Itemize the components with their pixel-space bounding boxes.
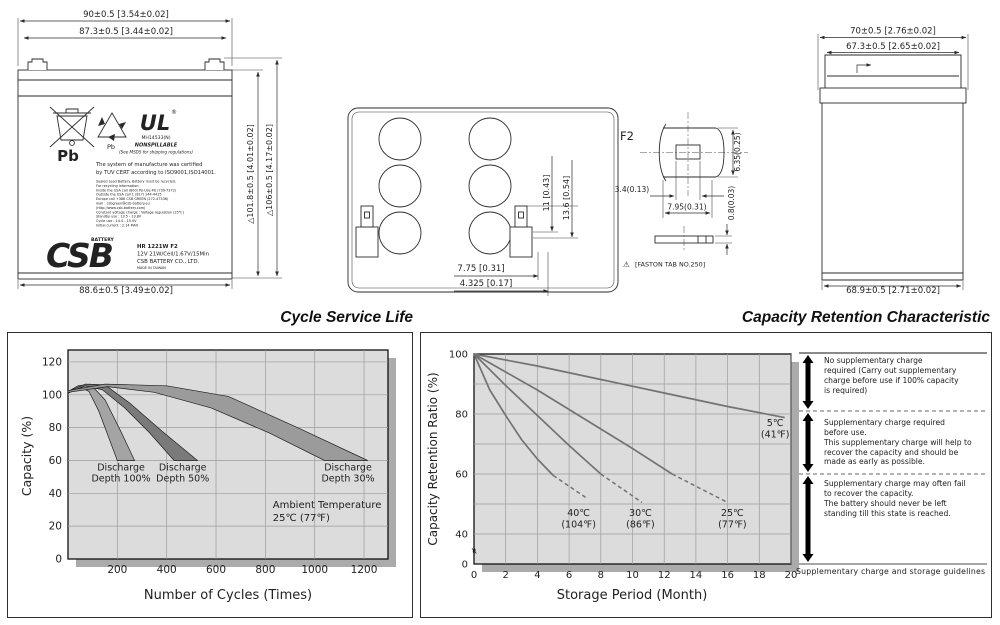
temperature-label: (77℉) (718, 520, 747, 531)
x-tick-label: 200 (107, 564, 127, 576)
x-tick-label: 16 (721, 570, 734, 581)
x-tick-label: 4 (534, 570, 540, 581)
band-label: Discharge (97, 462, 145, 473)
csb-logo: CSB (46, 236, 113, 275)
terminal-direction-arrow (857, 65, 871, 73)
y-zero-label: 0 (462, 560, 468, 571)
side-dim-top-inner: 67.3±0.5 [2.65±0.02] (846, 42, 940, 52)
notes-caption: Supplementary charge and storage guideli… (796, 567, 990, 576)
y-tick-label: 0 (55, 554, 62, 566)
temperature-label: (104℉) (561, 520, 596, 531)
note-charge-fail: Supplementary charge may often fail to r… (824, 479, 992, 518)
ambient-temperature-note: Ambient Temperature (273, 500, 382, 511)
retention-chart-panel: 024681012141618204060801000 5℃(41℉)25℃(7… (420, 332, 992, 618)
small-print-line: Standby use : 13.5 - 13.8V (96, 215, 142, 219)
y-tick-label: 100 (449, 350, 468, 361)
terminal-dim-height: 6.35(0.25) (733, 132, 742, 171)
small-print-line: Sealed Lead Battery. Battery must be rec… (96, 180, 176, 184)
top-view-drawing: 11 [0.43] 13.6 [0.54] 7.75 [0.31] 4.325 … (348, 108, 618, 296)
warning-triangle-icon: ⚠ (623, 260, 630, 269)
model-label: HR 1221W F2 (137, 244, 178, 250)
small-print-line: mail : csbgreen@csb-battery.eu (96, 202, 150, 206)
retention-chart-title: Capacity Retention Characteristic (420, 309, 990, 327)
x-tick-label: 12 (658, 570, 671, 581)
top-dim-tab-offset2: 4.325 [0.17] (460, 279, 513, 289)
y-tick-label: 80 (49, 422, 62, 434)
y-tick-label: 20 (49, 521, 62, 533)
origin-label: MADE IN TAIWAN (137, 266, 166, 270)
small-print-line: For recycling information: (96, 184, 140, 188)
msds-note: (See MSDS for shipping regulations) (119, 150, 193, 155)
terminal-dim-thickness: 0.8(0.03) (727, 186, 736, 221)
top-view-terminal-right (510, 206, 532, 257)
band-label: Depth 100% (91, 473, 150, 484)
y-tick-label: 60 (49, 455, 62, 467)
terminal-detail-drawing: F2 6.35(0.25) 3.4(0.13) 7.95(0.31) (615, 112, 748, 269)
notes-range-arrows (803, 355, 814, 562)
terminal-dim-slot: 3.4(0.13) (615, 185, 650, 194)
ul-file-number: MH14533(N) (141, 135, 170, 141)
band-label: Discharge (159, 462, 207, 473)
datasheet-page: 90±0.5 [3.54±0.02] 87.3±0.5 [3.44±0.02] (0, 0, 1000, 625)
cycle-y-axis-label: Capacity (%) (19, 416, 34, 496)
y-tick-label: 40 (49, 488, 62, 500)
small-print-line: Initial current : 2.14 MAX (96, 224, 139, 228)
cycle-chart-panel: 20040060080010001200020406080100120 Disc… (7, 332, 413, 618)
y-tick-label: 40 (455, 530, 468, 541)
small-print-line: Cycle use : 14.4 - 15.0V (96, 219, 137, 223)
x-tick-label: 1200 (351, 564, 378, 576)
cycle-chart-title: Cycle Service Life (7, 309, 413, 327)
cert-line2: by TUV CERT according to ISO9001,ISO1400… (96, 170, 216, 176)
side-dim-top-outer: 70±0.5 [2.76±0.02] (850, 27, 936, 37)
top-view-terminal-left (356, 206, 378, 257)
temperature-label: 40℃ (567, 508, 590, 519)
ul-registered-icon: ® (171, 109, 177, 116)
cert-line1: The system of manufacture was certified (95, 162, 202, 168)
x-tick-label: 1000 (301, 564, 328, 576)
temperature-label: 5℃ (767, 418, 784, 429)
note-no-charge: No supplementary charge required (Carry … (824, 356, 989, 395)
spec-label: 12V 21W/Cell/1.67V/15Min (137, 252, 209, 258)
band-label: Discharge (324, 462, 372, 473)
band-label: Depth 50% (156, 473, 209, 484)
front-dim-top-outer: 90±0.5 [3.54±0.02] (83, 10, 169, 20)
pb-large-label: Pb (57, 147, 79, 165)
x-tick-label: 2 (503, 570, 509, 581)
front-dim-height-case: △101.8±0.5 [4.01±0.02] (246, 124, 255, 224)
retention-y-axis-label: Capacity Retention Ratio (%) (426, 372, 440, 545)
front-view-drawing: 90±0.5 [3.54±0.02] 87.3±0.5 [3.44±0.02] (18, 10, 282, 296)
small-print-line: Europe call +386 CSB GREEN (272-47336) (96, 197, 169, 201)
top-dim-tab-offset: 7.75 [0.31] (457, 264, 504, 274)
y-tick-label: 120 (42, 356, 62, 368)
y-tick-label: 80 (455, 410, 468, 421)
terminal-tab-left (28, 59, 47, 70)
y-tick-label: 100 (42, 389, 62, 401)
temperature-label: 30℃ (629, 508, 652, 519)
terminal-type-label: F2 (620, 129, 634, 143)
top-dim-tab-height: 11 [0.43] (542, 175, 551, 212)
ambient-temperature-note: 25℃ (77℉) (273, 513, 330, 524)
temperature-label: (41℉) (761, 430, 790, 441)
faston-note: [FASTON TAB NO.250] (635, 261, 705, 269)
front-dim-bottom: 88.6±0.5 [3.49±0.02] (79, 286, 173, 296)
side-dim-bottom: 68.9±0.5 [2.71±0.02] (846, 286, 940, 296)
x-tick-label: 600 (206, 564, 226, 576)
small-print-line: Constant voltage charge : Voltage regula… (96, 210, 185, 214)
x-tick-label: 18 (753, 570, 766, 581)
y-tick-label: 60 (455, 470, 468, 481)
x-tick-label: 800 (255, 564, 275, 576)
side-view-drawing: 70±0.5 [2.76±0.02] 67.3±0.5 [2.65±0.02] … (818, 27, 968, 297)
ul-mark-icon: UL (140, 111, 170, 135)
small-print-line: (http://www.csb-battery.com) (96, 206, 146, 210)
pb-small-label: Pb (107, 143, 115, 151)
temperature-label: 25℃ (721, 508, 744, 519)
nonspillable-label: NONSPILLABLE (135, 143, 178, 149)
front-dim-top-inner: 87.3±0.5 [3.44±0.02] (79, 27, 173, 37)
x-tick-label: 14 (690, 570, 703, 581)
front-dim-height-total: △106±0.5 [4.17±0.02] (265, 124, 274, 216)
band-label: Depth 30% (321, 473, 374, 484)
cycle-chart: 20040060080010001200020406080100120 Disc… (8, 333, 412, 617)
x-tick-label: 8 (598, 570, 604, 581)
x-tick-label: 400 (157, 564, 177, 576)
x-tick-label: 10 (626, 570, 639, 581)
cycle-x-axis-label: Number of Cycles (Times) (144, 588, 312, 603)
small-print-line: Outside the USA call 1 (817) 244-4415 (96, 193, 162, 197)
top-dim-tab-height2: 13.6 [0.54] (562, 176, 571, 220)
retention-x-axis-label: Storage Period (Month) (557, 588, 708, 603)
terminal-tab-right (205, 59, 224, 70)
x-tick-label: 0 (471, 570, 477, 581)
engineering-drawings: 90±0.5 [3.54±0.02] 87.3±0.5 [3.44±0.02] (0, 0, 1000, 310)
company-label: CSB BATTERY CO., LTD. (137, 259, 199, 265)
x-tick-label: 6 (566, 570, 572, 581)
terminal-dim-width: 7.95(0.31) (667, 203, 706, 212)
small-print-line: Inside the USA call (800) Po-Use-Pb (739… (96, 188, 177, 192)
temperature-label: (86℉) (626, 520, 655, 531)
note-charge-required: Supplementary charge required before use… (824, 418, 992, 467)
